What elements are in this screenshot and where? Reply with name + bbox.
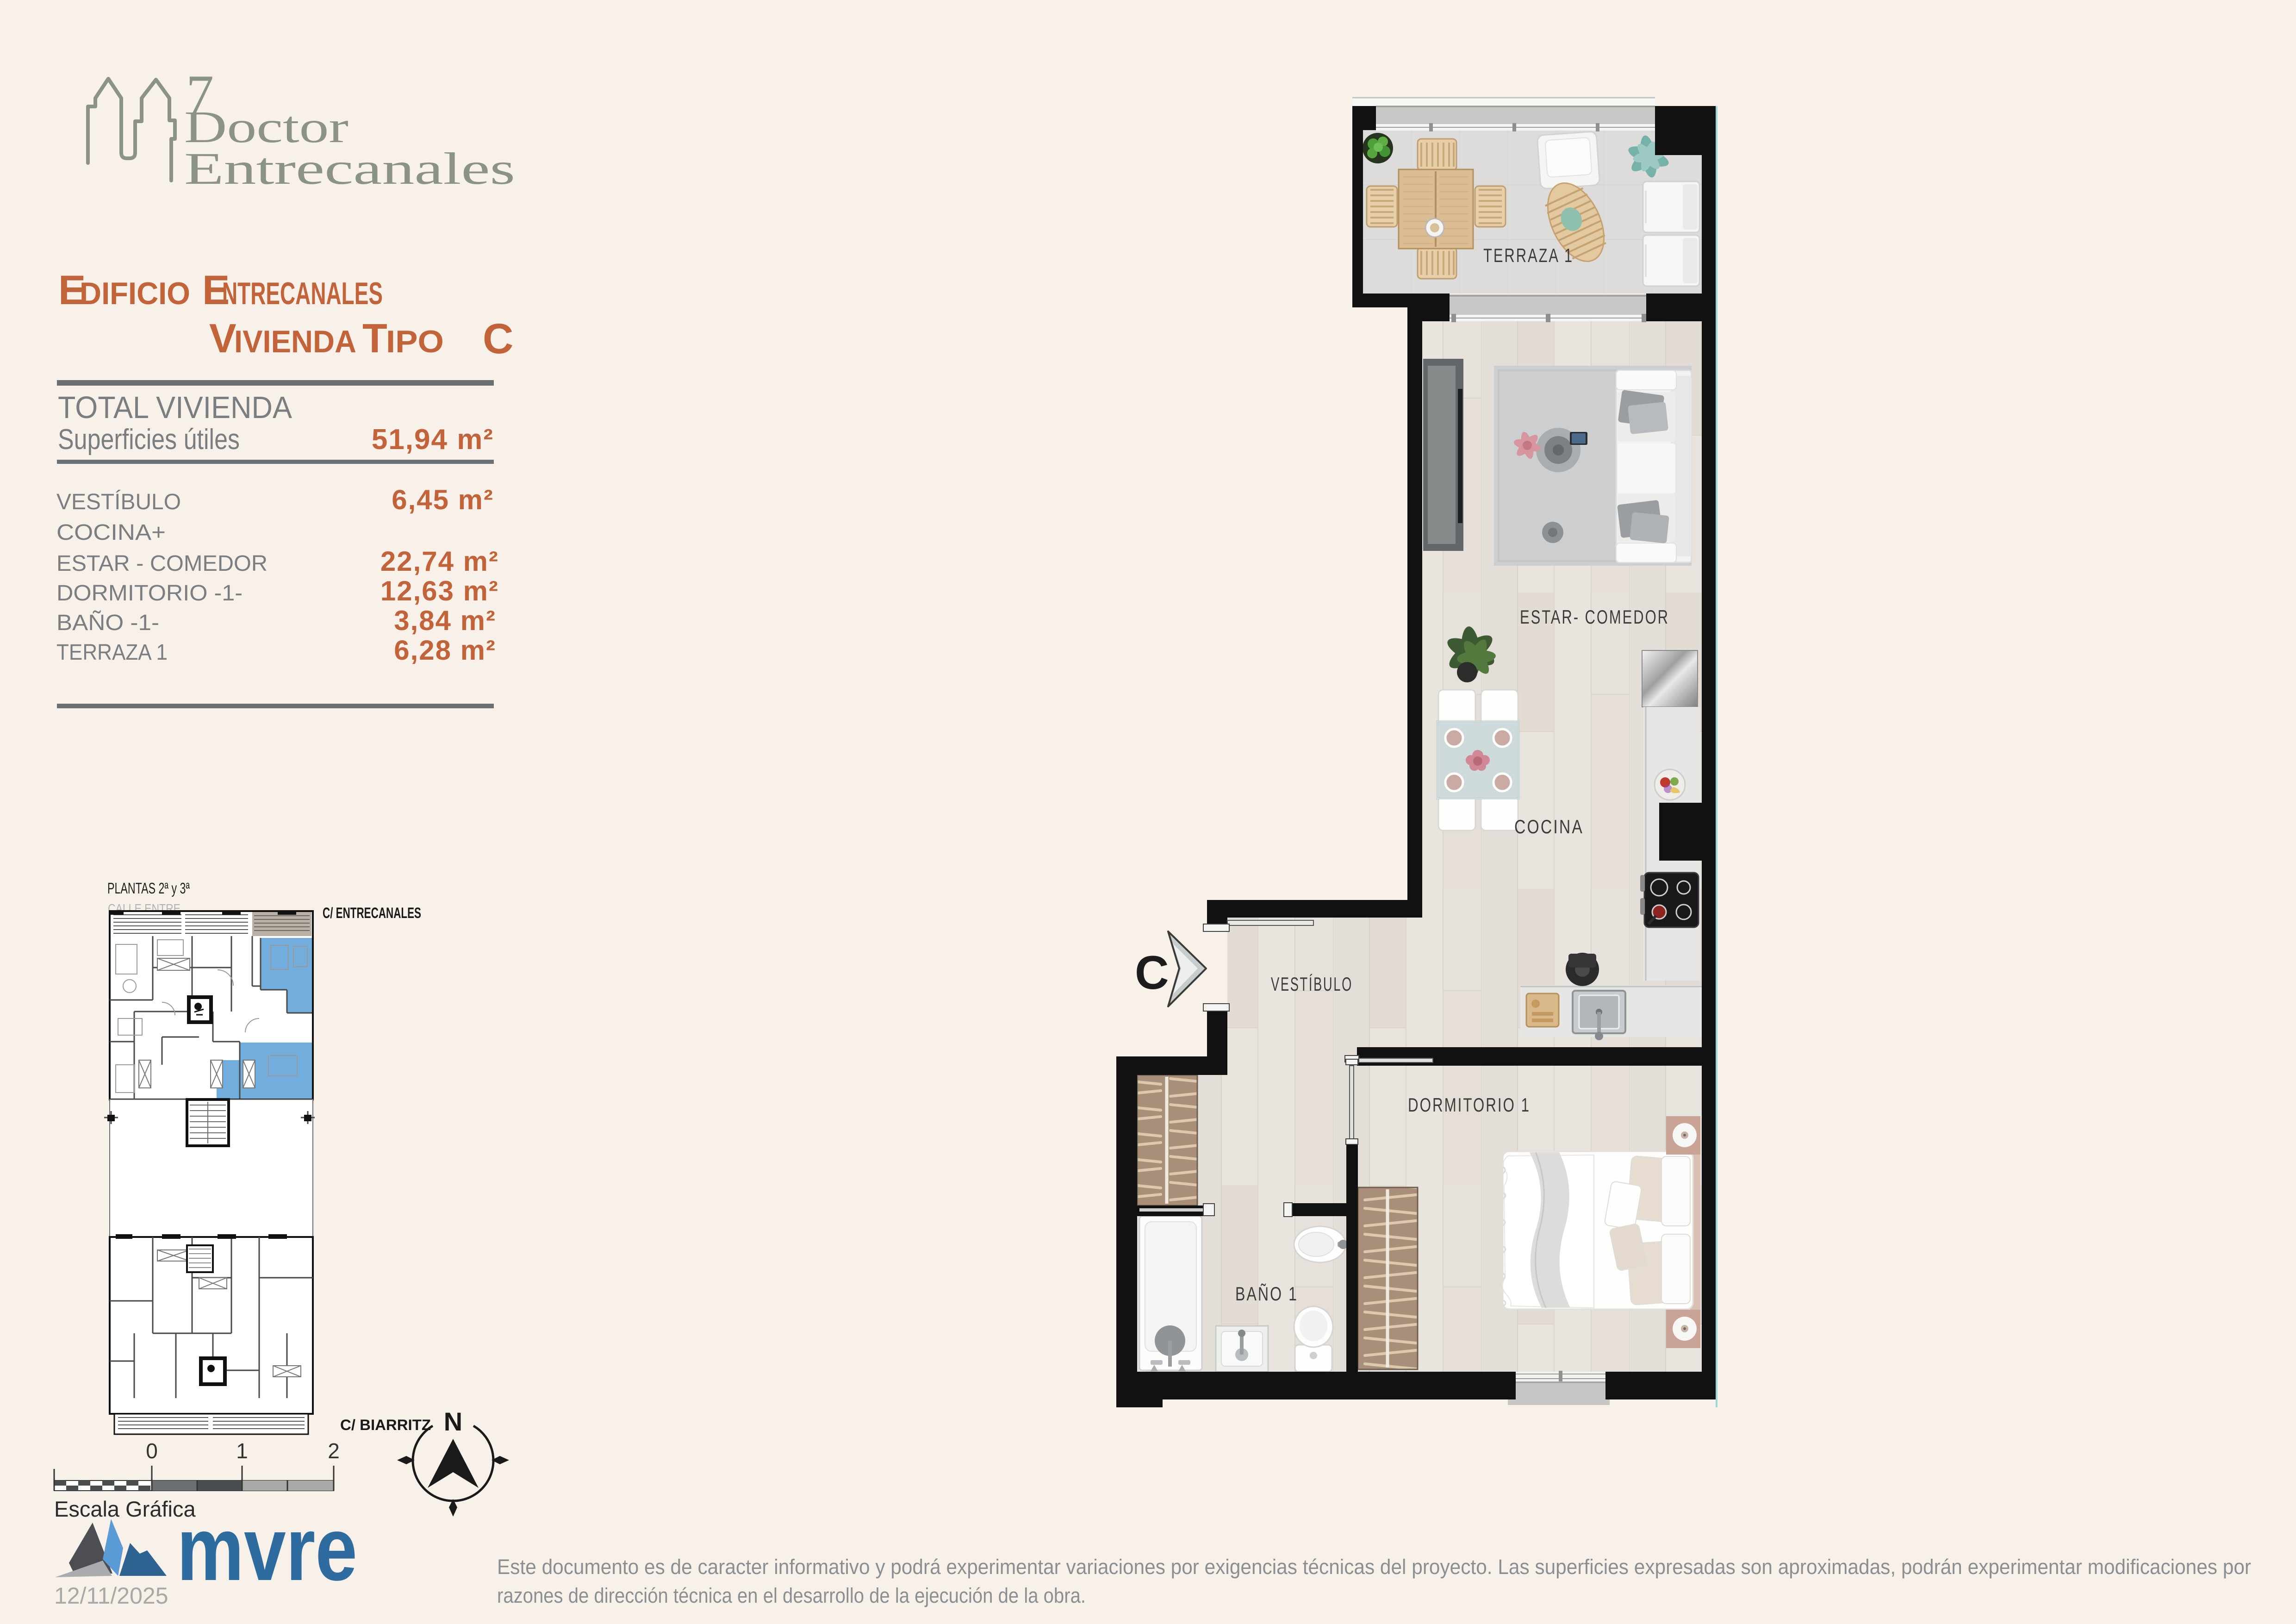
svg-text:3,84 m²: 3,84 m² <box>394 605 496 636</box>
svg-text:COCINA: COCINA <box>1514 816 1584 837</box>
svg-text:2: 2 <box>328 1439 340 1463</box>
svg-text:N: N <box>444 1407 462 1436</box>
svg-text:22,74 m²: 22,74 m² <box>380 546 499 577</box>
svg-text:DORMITORIO -1-: DORMITORIO -1- <box>56 581 243 606</box>
svg-text:Este documento es de caracter: Este documento es de caracter informativ… <box>497 1555 2251 1579</box>
svg-text:1: 1 <box>236 1439 248 1463</box>
svg-text:12/11/2025: 12/11/2025 <box>54 1583 168 1609</box>
svg-text:VESTÍBULO: VESTÍBULO <box>1271 973 1353 995</box>
svg-text:IVIENDA: IVIENDA <box>234 324 356 359</box>
svg-text:Superficies útiles: Superficies útiles <box>58 424 240 456</box>
svg-text:Entrecanales: Entrecanales <box>184 144 515 194</box>
svg-text:DORMITORIO 1: DORMITORIO 1 <box>1408 1094 1531 1116</box>
svg-text:TERRAZA 1: TERRAZA 1 <box>1483 244 1574 266</box>
svg-text:COCINA+: COCINA+ <box>56 520 166 545</box>
svg-text:razones de dirección técnica e: razones de dirección técnica en el desar… <box>497 1584 1086 1607</box>
svg-text:Escala Gráfica: Escala Gráfica <box>54 1497 196 1521</box>
svg-text:T: T <box>362 315 387 361</box>
svg-text:mvre: mvre <box>177 1499 357 1599</box>
svg-text:C/ BIARRITZ: C/ BIARRITZ <box>340 1417 431 1433</box>
svg-text:0: 0 <box>146 1439 158 1463</box>
svg-text:BAÑO -1-: BAÑO -1- <box>56 610 159 635</box>
svg-text:6,45 m²: 6,45 m² <box>392 484 494 515</box>
svg-text:ESTAR - COMEDOR: ESTAR - COMEDOR <box>56 551 268 576</box>
svg-text:ESTAR- COMEDOR: ESTAR- COMEDOR <box>1520 606 1669 628</box>
svg-text:BAÑO 1: BAÑO 1 <box>1235 1283 1298 1305</box>
svg-text:C: C <box>1135 946 1169 999</box>
svg-text:IPO: IPO <box>386 324 444 359</box>
svg-text:PLANTAS 2ª y 3ª: PLANTAS 2ª y 3ª <box>107 880 190 897</box>
svg-text:DIFICIO: DIFICIO <box>80 276 190 311</box>
svg-text:TOTAL VIVIENDA: TOTAL VIVIENDA <box>58 390 292 425</box>
svg-text:C: C <box>483 315 513 362</box>
svg-text:12,63 m²: 12,63 m² <box>380 575 499 606</box>
svg-text:NTRECANALES: NTRECANALES <box>222 276 383 311</box>
svg-text:C/ ENTRECANALES: C/ ENTRECANALES <box>323 905 421 921</box>
svg-text:V: V <box>209 315 236 361</box>
svg-text:VESTÍBULO: VESTÍBULO <box>56 490 181 514</box>
svg-text:6,28 m²: 6,28 m² <box>394 635 496 666</box>
svg-text:51,94 m²: 51,94 m² <box>372 424 494 456</box>
svg-text:TERRAZA 1: TERRAZA 1 <box>56 640 168 665</box>
